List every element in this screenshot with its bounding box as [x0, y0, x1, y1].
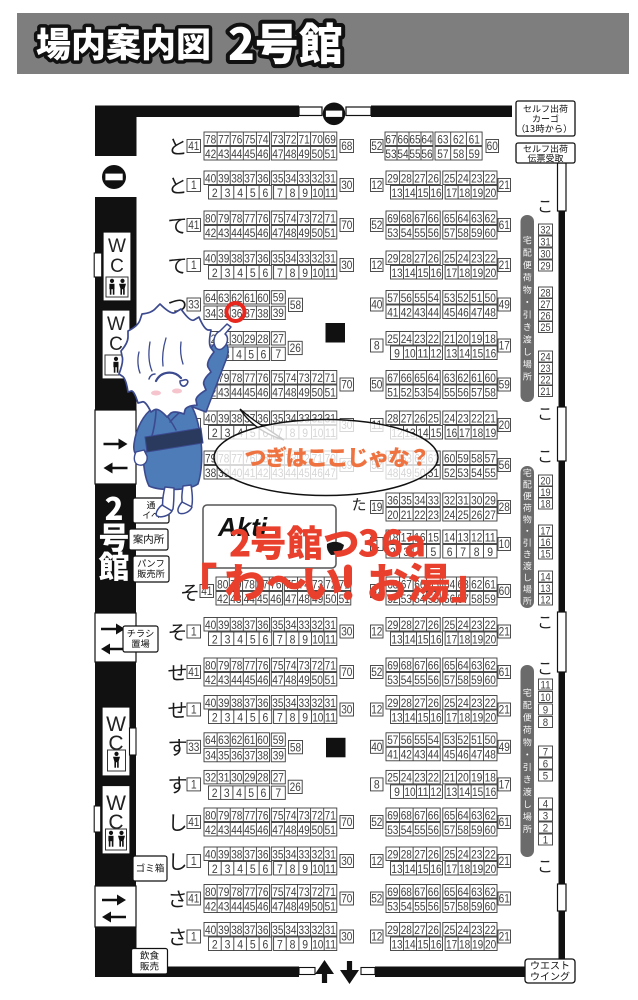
svg-text:16: 16 [430, 862, 441, 876]
svg-text:61: 61 [499, 665, 510, 679]
svg-text:17: 17 [446, 186, 457, 200]
svg-text:70: 70 [341, 665, 352, 679]
svg-text:15: 15 [540, 548, 550, 560]
svg-text:33: 33 [428, 493, 439, 507]
svg-text:67: 67 [414, 658, 425, 672]
svg-text:14: 14 [404, 937, 415, 951]
svg-text:43: 43 [218, 823, 229, 837]
svg-text:3: 3 [225, 710, 231, 724]
svg-text:19: 19 [472, 862, 483, 876]
svg-text:75: 75 [272, 658, 283, 672]
svg-text:80: 80 [205, 885, 216, 899]
svg-text:54: 54 [401, 673, 412, 687]
svg-text:50: 50 [312, 673, 323, 687]
svg-text:1: 1 [191, 703, 197, 717]
svg-text:62: 62 [231, 733, 242, 747]
svg-text:41: 41 [387, 748, 398, 762]
svg-text:71: 71 [325, 658, 336, 672]
svg-text:9: 9 [394, 785, 400, 799]
svg-text:22: 22 [485, 171, 496, 185]
svg-text:16: 16 [430, 937, 441, 951]
svg-text:6: 6 [261, 786, 267, 800]
svg-text:34: 34 [285, 923, 296, 937]
svg-text:42: 42 [205, 899, 216, 913]
svg-text:27: 27 [414, 696, 425, 710]
svg-text:61: 61 [499, 815, 510, 829]
svg-text:43: 43 [218, 899, 229, 913]
svg-text:29: 29 [540, 260, 550, 272]
svg-text:44: 44 [231, 823, 242, 837]
svg-text:26: 26 [290, 341, 301, 355]
svg-text:58: 58 [471, 592, 482, 606]
svg-text:54: 54 [401, 899, 412, 913]
svg-text:42: 42 [401, 748, 412, 762]
svg-text:21: 21 [540, 386, 550, 398]
svg-text:25: 25 [387, 332, 398, 346]
svg-text:79: 79 [218, 885, 229, 899]
svg-text:23: 23 [471, 171, 482, 185]
svg-text:23: 23 [414, 771, 425, 785]
svg-text:5: 5 [250, 186, 256, 200]
svg-text:53: 53 [414, 385, 425, 399]
svg-text:35: 35 [272, 251, 283, 265]
svg-text:57: 57 [444, 673, 455, 687]
svg-text:25: 25 [387, 771, 398, 785]
svg-text:20: 20 [485, 186, 496, 200]
svg-text:7: 7 [543, 746, 548, 758]
svg-text:28: 28 [401, 696, 412, 710]
svg-text:13: 13 [446, 346, 457, 360]
svg-text:66: 66 [428, 658, 439, 672]
svg-text:31: 31 [325, 923, 336, 937]
svg-text:53: 53 [387, 226, 398, 240]
svg-text:22: 22 [471, 411, 482, 425]
svg-text:56: 56 [428, 823, 439, 837]
svg-text:47: 47 [471, 305, 482, 319]
svg-text:27: 27 [401, 411, 412, 425]
svg-text:60: 60 [485, 823, 496, 837]
svg-text:3: 3 [225, 937, 231, 951]
svg-text:77: 77 [244, 808, 255, 822]
svg-text:2: 2 [543, 822, 548, 834]
svg-text:60: 60 [444, 451, 455, 465]
svg-text:15: 15 [417, 266, 428, 280]
svg-text:26: 26 [471, 508, 482, 522]
svg-text:4: 4 [236, 347, 242, 361]
svg-text:66: 66 [428, 808, 439, 822]
svg-text:56: 56 [458, 385, 469, 399]
svg-text:29: 29 [485, 493, 496, 507]
svg-text:30: 30 [341, 625, 352, 639]
svg-text:31: 31 [325, 618, 336, 632]
svg-text:6: 6 [447, 545, 453, 559]
svg-text:70: 70 [341, 378, 352, 392]
svg-text:28: 28 [401, 923, 412, 937]
svg-text:10: 10 [312, 266, 323, 280]
svg-text:41: 41 [188, 892, 199, 906]
svg-text:25: 25 [444, 171, 455, 185]
svg-text:14: 14 [404, 632, 415, 646]
svg-text:8: 8 [290, 862, 296, 876]
svg-text:3: 3 [225, 862, 231, 876]
svg-text:32: 32 [312, 923, 323, 937]
svg-text:35: 35 [272, 618, 283, 632]
svg-text:54: 54 [397, 147, 408, 161]
svg-text:22: 22 [428, 771, 439, 785]
svg-text:50: 50 [325, 592, 336, 606]
svg-text:13: 13 [540, 583, 550, 595]
svg-text:59: 59 [273, 733, 284, 747]
svg-text:19: 19 [471, 771, 482, 785]
svg-text:17: 17 [459, 426, 470, 440]
svg-text:31: 31 [540, 236, 550, 248]
svg-text:33: 33 [299, 251, 310, 265]
svg-text:49: 49 [299, 823, 310, 837]
svg-text:22: 22 [485, 251, 496, 265]
svg-text:36: 36 [257, 696, 268, 710]
svg-text:56: 56 [428, 226, 439, 240]
svg-text:20: 20 [458, 332, 469, 346]
svg-text:72: 72 [285, 132, 296, 146]
svg-text:14: 14 [444, 530, 455, 544]
svg-text:72: 72 [312, 658, 323, 672]
svg-text:29: 29 [387, 923, 398, 937]
svg-text:58: 58 [458, 823, 469, 837]
svg-text:69: 69 [387, 658, 398, 672]
svg-text:65: 65 [444, 808, 455, 822]
svg-text:9: 9 [302, 710, 308, 724]
svg-text:51: 51 [325, 226, 336, 240]
svg-text:74: 74 [257, 132, 268, 146]
svg-text:21: 21 [444, 332, 455, 346]
svg-text:25: 25 [444, 251, 455, 265]
svg-text:12: 12 [430, 785, 441, 799]
svg-text:25: 25 [444, 696, 455, 710]
svg-text:4: 4 [237, 632, 243, 646]
svg-text:6: 6 [261, 347, 267, 361]
svg-text:36: 36 [387, 493, 398, 507]
svg-text:9: 9 [394, 346, 400, 360]
svg-text:20: 20 [540, 475, 550, 487]
svg-text:34: 34 [414, 493, 425, 507]
svg-text:71: 71 [325, 371, 336, 385]
svg-text:61: 61 [244, 733, 255, 747]
svg-text:18: 18 [485, 771, 496, 785]
svg-text:28: 28 [401, 618, 412, 632]
svg-text:30: 30 [231, 771, 242, 785]
svg-text:27: 27 [414, 251, 425, 265]
svg-text:21: 21 [485, 411, 496, 425]
svg-text:1: 1 [191, 778, 197, 792]
svg-text:15: 15 [417, 186, 428, 200]
svg-text:44: 44 [231, 147, 242, 161]
svg-text:32: 32 [312, 847, 323, 861]
svg-text:46: 46 [458, 305, 469, 319]
svg-text:53: 53 [387, 899, 398, 913]
svg-text:55: 55 [414, 226, 425, 240]
svg-text:26: 26 [540, 310, 550, 322]
svg-text:79: 79 [218, 211, 229, 225]
svg-text:75: 75 [272, 371, 283, 385]
svg-text:43: 43 [218, 385, 229, 399]
svg-text:22: 22 [485, 696, 496, 710]
svg-text:54: 54 [401, 226, 412, 240]
svg-text:66: 66 [428, 211, 439, 225]
svg-text:10: 10 [312, 632, 323, 646]
svg-text:3: 3 [224, 786, 230, 800]
svg-text:76: 76 [257, 808, 268, 822]
svg-text:35: 35 [272, 923, 283, 937]
svg-text:47: 47 [272, 673, 283, 687]
svg-text:32: 32 [444, 493, 455, 507]
svg-text:40: 40 [205, 171, 216, 185]
svg-text:55: 55 [414, 291, 425, 305]
svg-text:18: 18 [459, 632, 470, 646]
svg-text:55: 55 [414, 823, 425, 837]
svg-text:51: 51 [325, 147, 336, 161]
svg-text:78: 78 [231, 371, 242, 385]
svg-text:30: 30 [471, 493, 482, 507]
svg-text:68: 68 [401, 211, 412, 225]
svg-text:46: 46 [458, 748, 469, 762]
svg-text:19: 19 [472, 186, 483, 200]
svg-text:39: 39 [218, 923, 229, 937]
svg-text:5: 5 [248, 786, 254, 800]
svg-text:21: 21 [499, 854, 510, 868]
svg-text:56: 56 [401, 733, 412, 747]
svg-text:51: 51 [325, 899, 336, 913]
svg-text:16: 16 [485, 785, 496, 799]
svg-text:77: 77 [244, 885, 255, 899]
svg-text:25: 25 [444, 618, 455, 632]
svg-text:24: 24 [444, 508, 455, 522]
svg-text:11: 11 [325, 186, 336, 200]
svg-text:61: 61 [244, 291, 255, 305]
svg-text:55: 55 [485, 466, 496, 480]
svg-text:58: 58 [458, 673, 469, 687]
svg-text:50: 50 [312, 147, 323, 161]
svg-text:68: 68 [401, 808, 412, 822]
svg-text:52: 52 [401, 385, 412, 399]
svg-text:60: 60 [485, 371, 496, 385]
svg-text:47: 47 [272, 899, 283, 913]
svg-text:30: 30 [231, 332, 242, 346]
svg-text:38: 38 [231, 847, 242, 861]
svg-text:47: 47 [285, 592, 296, 606]
svg-text:2: 2 [212, 632, 218, 646]
svg-text:44: 44 [428, 305, 439, 319]
svg-text:2: 2 [212, 786, 218, 800]
svg-text:64: 64 [421, 132, 432, 146]
svg-text:48: 48 [285, 226, 296, 240]
svg-text:30: 30 [341, 178, 352, 192]
svg-text:65: 65 [444, 885, 455, 899]
svg-text:80: 80 [217, 577, 228, 591]
svg-text:20: 20 [499, 418, 510, 432]
svg-text:37: 37 [244, 696, 255, 710]
svg-text:21: 21 [444, 771, 455, 785]
svg-text:16: 16 [430, 266, 441, 280]
svg-text:8: 8 [290, 937, 296, 951]
svg-text:5: 5 [248, 347, 254, 361]
svg-text:44: 44 [231, 673, 242, 687]
svg-text:59: 59 [499, 378, 510, 392]
svg-text:57: 57 [444, 899, 455, 913]
svg-text:78: 78 [205, 132, 216, 146]
svg-text:14: 14 [404, 186, 415, 200]
svg-text:34: 34 [205, 306, 216, 320]
svg-text:76: 76 [257, 371, 268, 385]
svg-text:40: 40 [205, 847, 216, 861]
svg-text:36: 36 [257, 171, 268, 185]
svg-text:16: 16 [485, 346, 496, 360]
svg-text:38: 38 [231, 696, 242, 710]
svg-text:62: 62 [485, 885, 496, 899]
svg-text:11: 11 [417, 785, 428, 799]
svg-text:66: 66 [428, 885, 439, 899]
svg-text:59: 59 [471, 226, 482, 240]
svg-text:79: 79 [218, 808, 229, 822]
svg-text:41: 41 [387, 305, 398, 319]
svg-text:31: 31 [325, 251, 336, 265]
svg-text:62: 62 [471, 577, 482, 591]
svg-text:27: 27 [540, 299, 550, 311]
svg-text:19: 19 [540, 487, 550, 499]
svg-text:C: C [110, 256, 124, 277]
svg-text:18: 18 [540, 498, 550, 510]
svg-text:7: 7 [277, 862, 283, 876]
svg-text:13: 13 [446, 785, 457, 799]
svg-text:7: 7 [277, 632, 283, 646]
svg-text:39: 39 [218, 251, 229, 265]
svg-text:23: 23 [471, 923, 482, 937]
svg-text:1: 1 [543, 834, 548, 846]
svg-text:74: 74 [285, 211, 296, 225]
svg-text:4: 4 [543, 798, 548, 810]
svg-text:41: 41 [188, 665, 199, 679]
svg-text:39: 39 [273, 748, 284, 762]
svg-text:29: 29 [244, 771, 255, 785]
svg-text:77: 77 [244, 658, 255, 672]
svg-text:30: 30 [341, 703, 352, 717]
svg-text:15: 15 [430, 426, 441, 440]
svg-text:7: 7 [277, 266, 283, 280]
svg-text:6: 6 [263, 862, 269, 876]
svg-text:24: 24 [458, 923, 469, 937]
svg-text:3: 3 [225, 632, 231, 646]
svg-text:28: 28 [257, 332, 268, 346]
svg-text:29: 29 [387, 251, 398, 265]
svg-text:73: 73 [272, 132, 283, 146]
svg-text:57: 57 [387, 291, 398, 305]
svg-text:60: 60 [257, 733, 268, 747]
svg-text:15: 15 [428, 530, 439, 544]
svg-text:5: 5 [250, 710, 256, 724]
svg-text:32: 32 [312, 251, 323, 265]
svg-text:14: 14 [459, 785, 470, 799]
svg-text:4: 4 [236, 786, 242, 800]
svg-text:49: 49 [499, 298, 510, 312]
svg-text:17: 17 [499, 339, 510, 353]
svg-text:28: 28 [401, 171, 412, 185]
svg-text:75: 75 [244, 132, 255, 146]
svg-text:13: 13 [458, 530, 469, 544]
svg-text:77: 77 [218, 132, 229, 146]
svg-text:37: 37 [244, 171, 255, 185]
svg-text:33: 33 [299, 696, 310, 710]
svg-text:62: 62 [453, 132, 464, 146]
svg-text:31: 31 [325, 171, 336, 185]
svg-text:11: 11 [485, 530, 496, 544]
svg-text:19: 19 [472, 937, 483, 951]
svg-text:11: 11 [325, 937, 336, 951]
svg-text:39: 39 [218, 696, 229, 710]
svg-text:63: 63 [218, 291, 229, 305]
svg-text:38: 38 [205, 466, 216, 480]
svg-text:12: 12 [371, 930, 382, 944]
svg-text:14: 14 [540, 571, 550, 583]
svg-text:8: 8 [543, 717, 548, 729]
svg-text:36: 36 [257, 251, 268, 265]
svg-text:40: 40 [205, 696, 216, 710]
svg-text:53: 53 [444, 291, 455, 305]
svg-text:59: 59 [471, 673, 482, 687]
svg-text:2: 2 [212, 186, 218, 200]
svg-text:54: 54 [428, 291, 439, 305]
svg-text:43: 43 [218, 673, 229, 687]
svg-text:35: 35 [218, 749, 229, 763]
svg-text:51: 51 [387, 385, 398, 399]
svg-text:69: 69 [325, 132, 336, 146]
svg-text:27: 27 [414, 171, 425, 185]
svg-text:64: 64 [458, 211, 469, 225]
svg-text:10: 10 [312, 186, 323, 200]
svg-text:73: 73 [299, 658, 310, 672]
svg-text:39: 39 [218, 171, 229, 185]
svg-text:2: 2 [212, 937, 218, 951]
svg-text:13: 13 [391, 862, 402, 876]
svg-text:4: 4 [237, 862, 243, 876]
svg-text:39: 39 [218, 411, 229, 425]
svg-text:76: 76 [257, 885, 268, 899]
svg-text:69: 69 [387, 885, 398, 899]
svg-text:71: 71 [325, 211, 336, 225]
svg-text:33: 33 [188, 740, 199, 754]
svg-text:21: 21 [499, 258, 510, 272]
svg-text:71: 71 [299, 132, 310, 146]
svg-text:55: 55 [414, 899, 425, 913]
svg-text:44: 44 [231, 226, 242, 240]
svg-text:33: 33 [299, 618, 310, 632]
svg-text:80: 80 [205, 658, 216, 672]
svg-text:11: 11 [325, 266, 336, 280]
svg-text:51: 51 [325, 385, 336, 399]
svg-text:5: 5 [250, 266, 256, 280]
svg-text:48: 48 [485, 748, 496, 762]
svg-text:44: 44 [231, 385, 242, 399]
svg-text:13: 13 [391, 266, 402, 280]
svg-text:46: 46 [270, 592, 281, 606]
svg-text:17: 17 [446, 632, 457, 646]
svg-text:57: 57 [437, 147, 448, 161]
svg-text:45: 45 [244, 147, 255, 161]
svg-text:60: 60 [485, 226, 496, 240]
svg-text:64: 64 [205, 733, 216, 747]
svg-text:24: 24 [458, 696, 469, 710]
svg-text:57: 57 [485, 451, 496, 465]
svg-text:64: 64 [428, 371, 439, 385]
svg-text:41: 41 [188, 139, 199, 153]
